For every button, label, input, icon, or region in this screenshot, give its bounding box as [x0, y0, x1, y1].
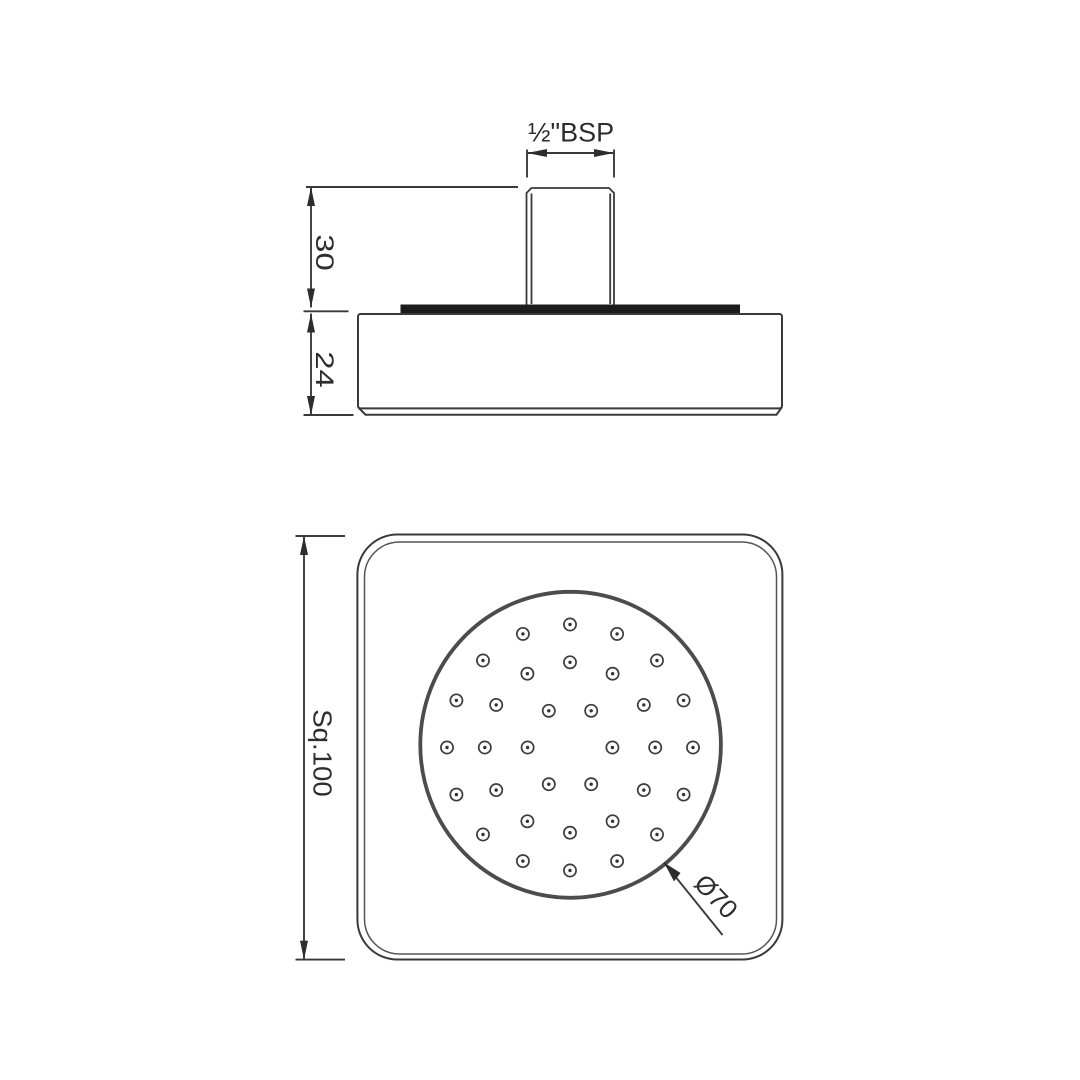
svg-text:½"BSP: ½"BSP	[528, 117, 614, 147]
svg-text:24: 24	[310, 351, 338, 388]
svg-text:30: 30	[310, 234, 338, 271]
svg-text:Sq.100: Sq.100	[308, 709, 338, 797]
